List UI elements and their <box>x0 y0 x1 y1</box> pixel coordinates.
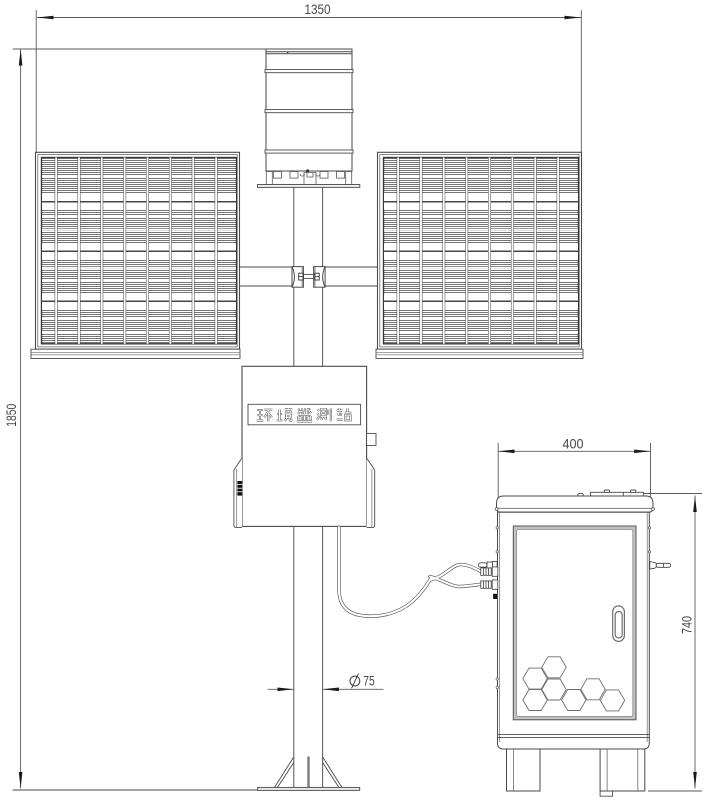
svg-text:1350: 1350 <box>305 1 331 17</box>
svg-text:75: 75 <box>363 673 375 689</box>
svg-text:1850: 1850 <box>3 404 19 427</box>
svg-text:740: 740 <box>678 616 694 634</box>
svg-text:400: 400 <box>563 436 584 452</box>
